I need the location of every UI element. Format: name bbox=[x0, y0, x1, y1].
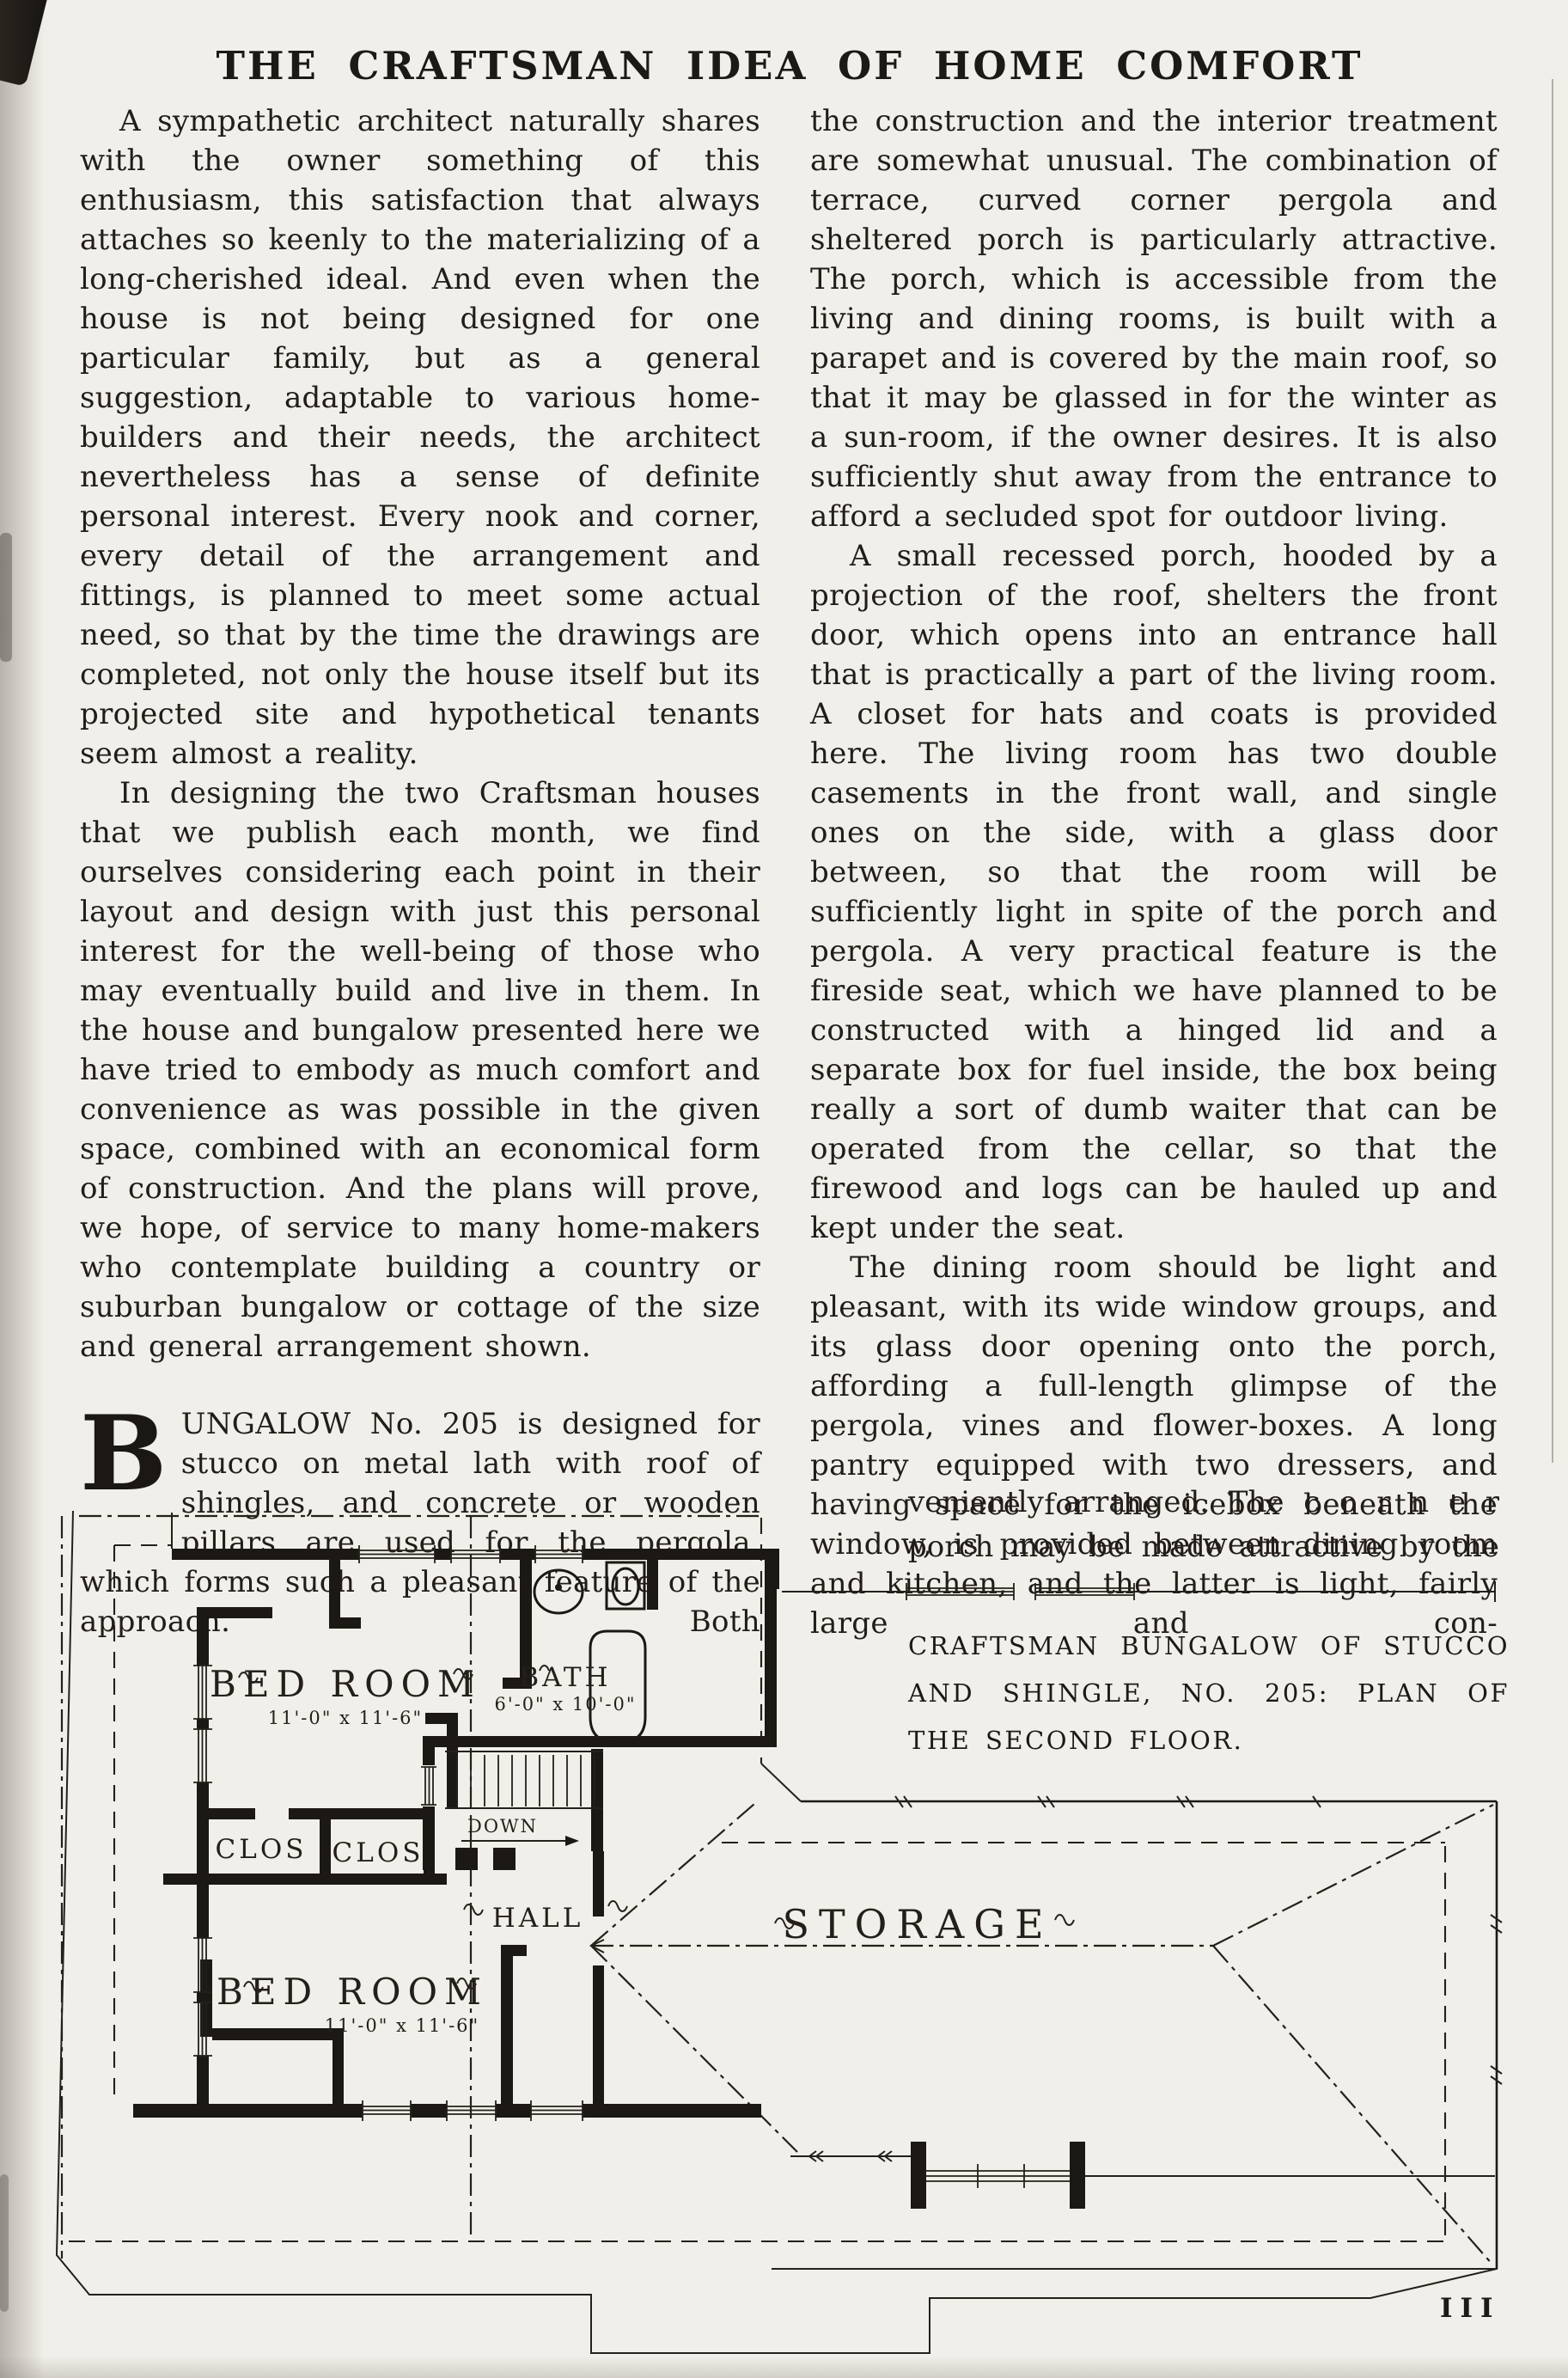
left-column: A sympathetic architect naturally shares… bbox=[80, 101, 760, 1641]
paragraph: In designing the two Craftsman houses th… bbox=[80, 773, 760, 1366]
right-column: the construction and the interior treatm… bbox=[810, 101, 1498, 1643]
room-labels: BED ROOM 11'-0" x 11'-6" BATH 6'-0" x 10… bbox=[210, 1662, 1053, 2036]
roof-ridge-hips bbox=[591, 1804, 1493, 2265]
closet2-label: CLOS bbox=[333, 1837, 424, 1868]
scan-smudge bbox=[0, 533, 12, 662]
paragraph: A small recessed porch, hooded by a proj… bbox=[810, 536, 1498, 1248]
magazine-page: THE CRAFTSMAN IDEA OF HOME COMFORT A sym… bbox=[0, 0, 1568, 2378]
lower-porch-rail bbox=[790, 2142, 1495, 2209]
hall-label: HALL bbox=[492, 1903, 584, 1934]
bath-fixtures bbox=[534, 1562, 645, 1743]
bedroom2-dims: 11'-0" x 11'-6" bbox=[325, 2015, 479, 2036]
down-arrow-icon bbox=[461, 1836, 579, 1846]
floor-plan-drawing: DOWN bbox=[34, 1506, 1547, 2374]
page-number: III bbox=[1440, 2293, 1501, 2324]
page-title: THE CRAFTSMAN IDEA OF HOME COMFORT bbox=[80, 43, 1499, 89]
stairs-down-label: DOWN bbox=[467, 1816, 538, 1837]
roof-eave-lines bbox=[62, 1516, 1448, 2259]
paragraph: A sympathetic architect naturally shares… bbox=[80, 101, 760, 773]
roof-solid-edges bbox=[772, 1796, 1502, 2269]
bath-label: BATH bbox=[519, 1662, 611, 1693]
bedroom2-label: BED ROOM bbox=[217, 1971, 488, 2013]
sink-icon bbox=[534, 1570, 583, 1613]
toilet-icon bbox=[607, 1562, 644, 1609]
paragraph: the construction and the interior treatm… bbox=[810, 101, 1498, 536]
page-edge-rule bbox=[1552, 79, 1553, 1463]
upper-porch-rail bbox=[782, 1581, 1495, 1602]
bedroom1-dims: 11'-0" x 11'-6" bbox=[268, 1708, 423, 1728]
closet1-label: CLOS bbox=[216, 1834, 308, 1865]
scan-smudge bbox=[0, 2174, 9, 2312]
storage-label: STORAGE bbox=[782, 1901, 1052, 1947]
bedroom1-label: BED ROOM bbox=[210, 1663, 481, 1705]
staircase: DOWN bbox=[445, 1751, 603, 1846]
bath-dims: 6'-0" x 10'-0" bbox=[494, 1694, 636, 1715]
